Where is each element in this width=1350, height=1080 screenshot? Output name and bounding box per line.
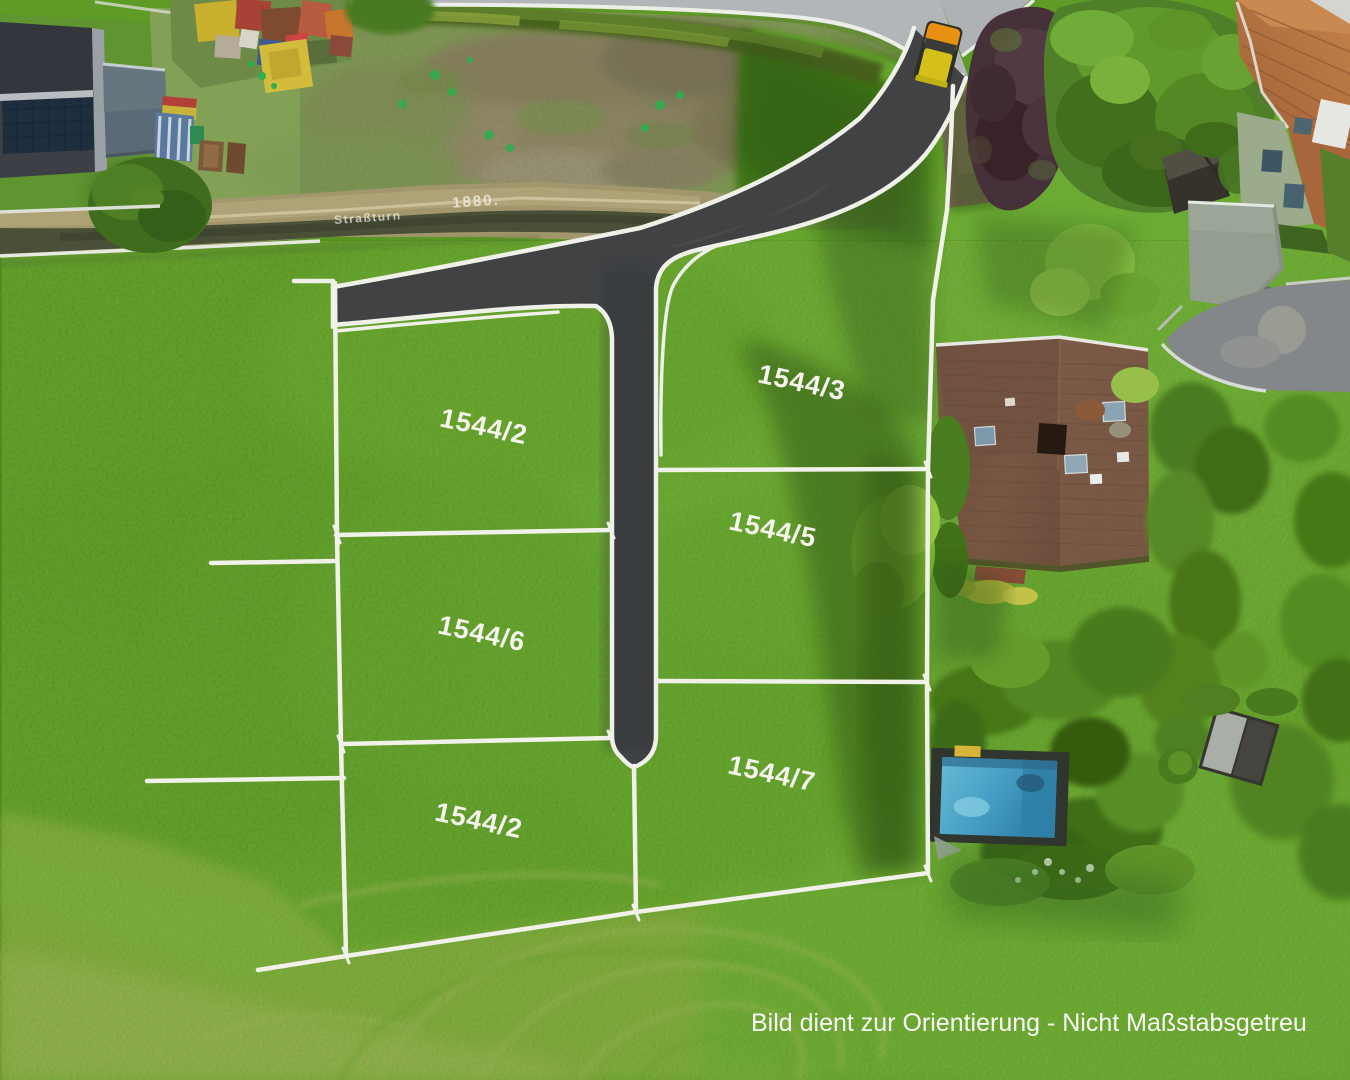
- svg-text:1880.: 1880.: [452, 191, 501, 211]
- svg-text:Bild dient zur Orientierung -: Bild dient zur Orientierung - Nicht Maßs…: [751, 1009, 1307, 1037]
